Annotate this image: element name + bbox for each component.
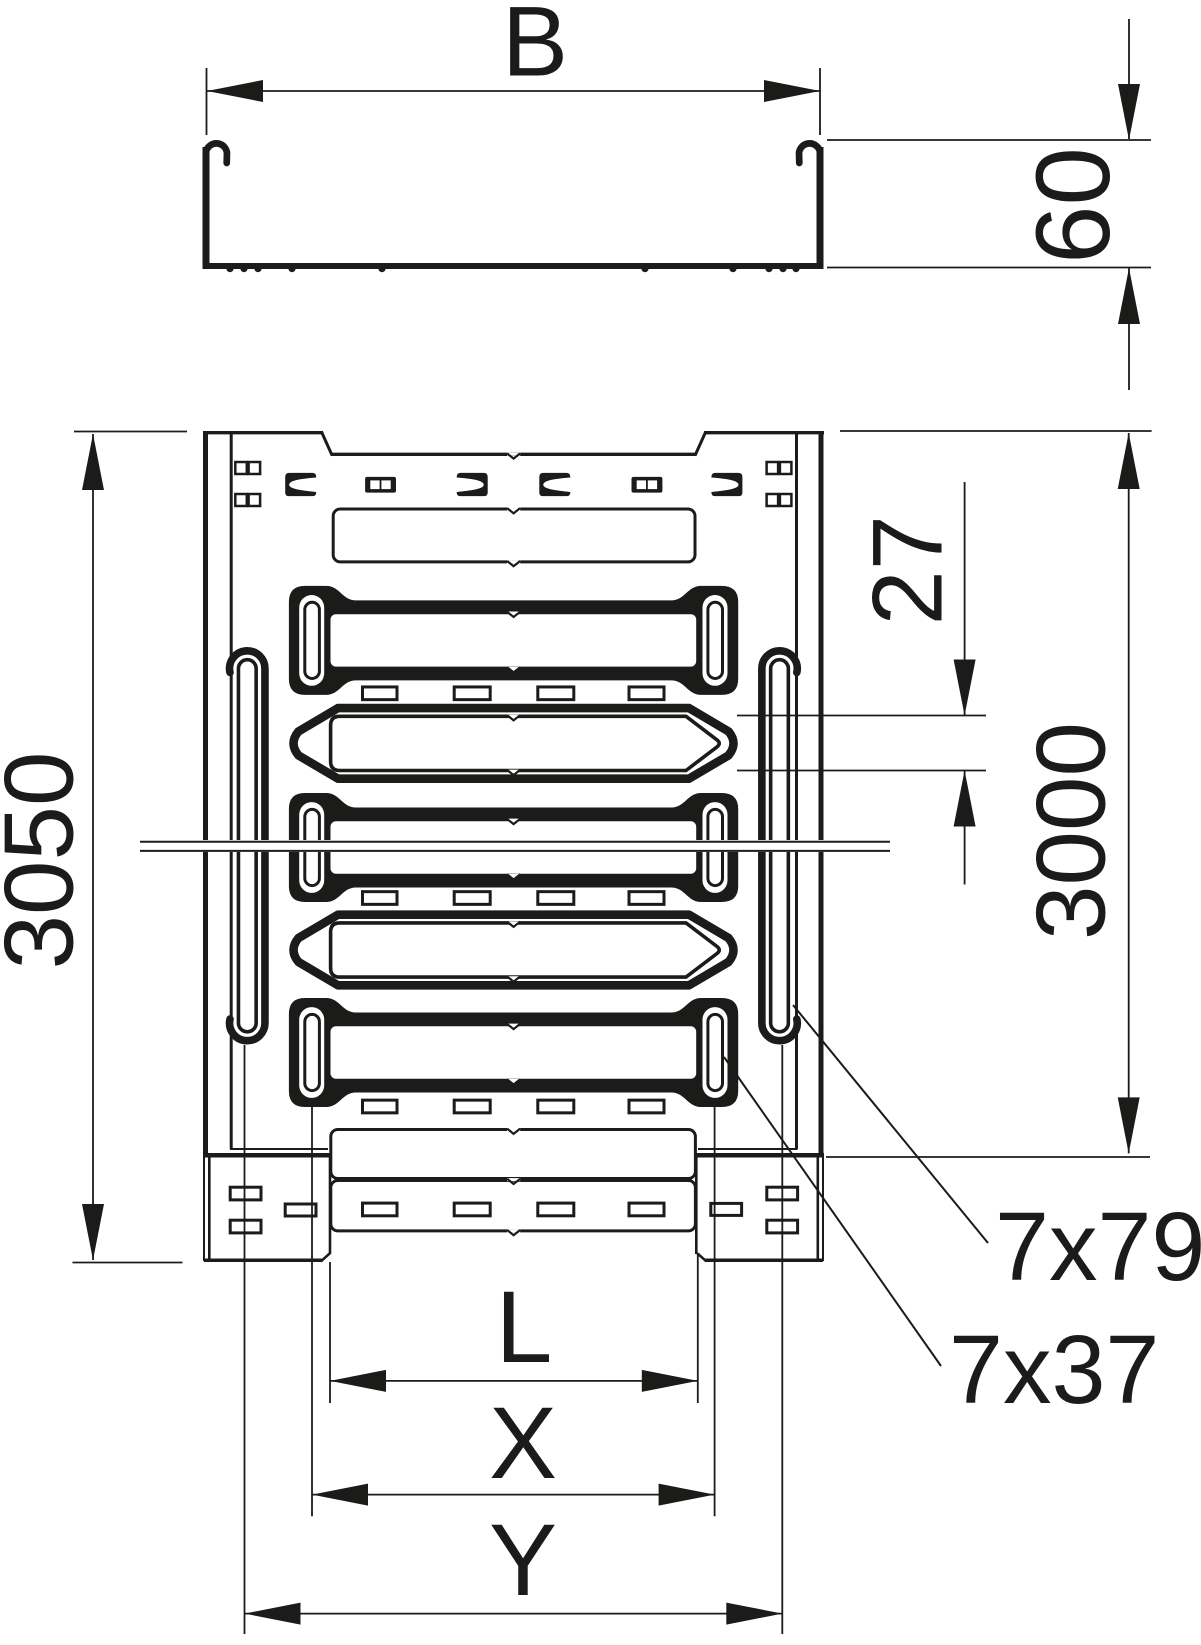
svg-text:B: B [502, 0, 568, 97]
svg-text:3000: 3000 [1016, 722, 1126, 940]
svg-text:60: 60 [1015, 147, 1132, 264]
svg-text:Y: Y [489, 1503, 557, 1617]
svg-text:L: L [496, 1270, 553, 1384]
svg-text:27: 27 [852, 515, 963, 625]
svg-text:7x79: 7x79 [995, 1192, 1201, 1301]
svg-text:7x37: 7x37 [949, 1315, 1159, 1424]
svg-text:3050: 3050 [0, 751, 94, 969]
svg-text:X: X [489, 1386, 557, 1500]
